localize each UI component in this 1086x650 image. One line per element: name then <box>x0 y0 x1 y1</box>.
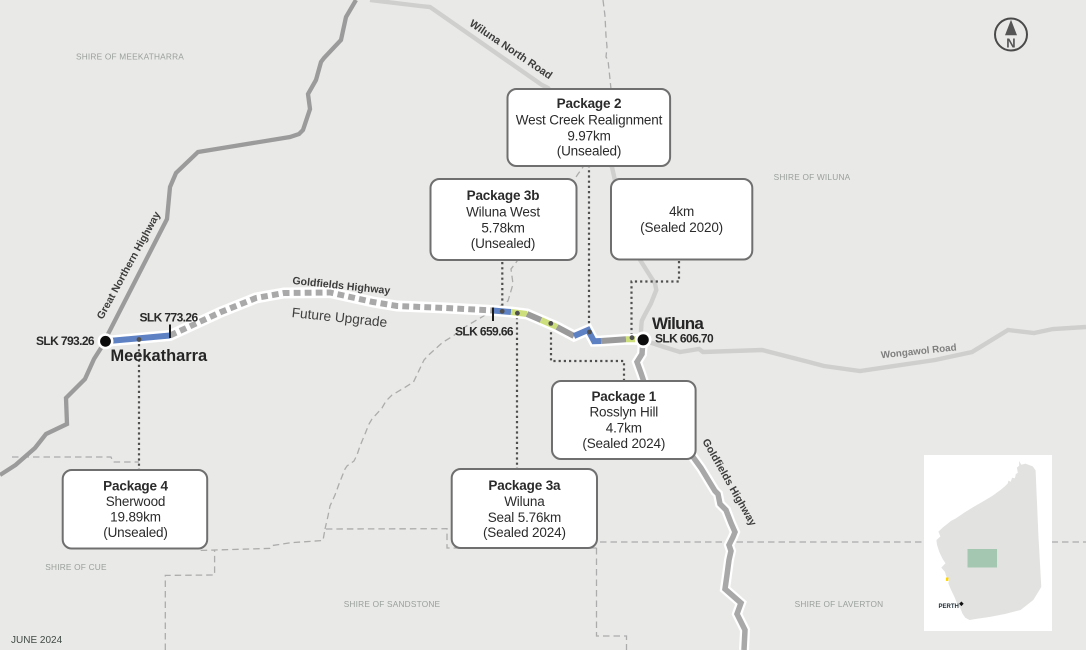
svg-text:SLK 659.66: SLK 659.66 <box>455 325 514 339</box>
svg-text:4.7km: 4.7km <box>606 420 642 435</box>
svg-text:SLK 606.70: SLK 606.70 <box>655 332 714 346</box>
svg-text:(Sealed 2020): (Sealed 2020) <box>640 220 723 235</box>
svg-text:N: N <box>1006 36 1015 51</box>
svg-text:SLK 793.26: SLK 793.26 <box>36 334 95 348</box>
svg-text:JUNE 2024: JUNE 2024 <box>11 635 63 646</box>
svg-text:SHIRE OF SANDSTONE: SHIRE OF SANDSTONE <box>344 599 441 609</box>
svg-text:Rosslyn Hill: Rosslyn Hill <box>589 405 658 420</box>
svg-text:Meekatharra: Meekatharra <box>111 347 208 365</box>
svg-text:5.78km: 5.78km <box>481 221 524 236</box>
svg-text:(Sealed 2024): (Sealed 2024) <box>483 525 566 540</box>
svg-text:Seal 5.76km: Seal 5.76km <box>488 510 561 525</box>
svg-text:PERTH: PERTH <box>939 604 959 610</box>
svg-text:(Unsealed): (Unsealed) <box>103 525 168 540</box>
svg-text:SHIRE OF MEEKATHARRA: SHIRE OF MEEKATHARRA <box>76 52 184 62</box>
svg-text:Package 3b: Package 3b <box>467 188 540 203</box>
svg-text:Sherwood: Sherwood <box>106 494 166 509</box>
svg-text:SHIRE OF WILUNA: SHIRE OF WILUNA <box>774 172 851 182</box>
svg-text:(Sealed 2024): (Sealed 2024) <box>582 436 665 451</box>
svg-text:Package 2: Package 2 <box>557 96 622 111</box>
svg-text:Package 4: Package 4 <box>103 479 168 494</box>
svg-text:19.89km: 19.89km <box>110 510 161 525</box>
svg-text:Wiluna: Wiluna <box>504 494 545 509</box>
svg-text:SHIRE OF CUE: SHIRE OF CUE <box>45 562 107 572</box>
svg-text:Wiluna West: Wiluna West <box>466 205 540 220</box>
svg-text:Wiluna: Wiluna <box>652 314 704 333</box>
svg-text:SHIRE OF LAVERTON: SHIRE OF LAVERTON <box>795 599 884 609</box>
svg-text:West Creek Realignment: West Creek Realignment <box>516 113 663 128</box>
svg-text:(Unsealed): (Unsealed) <box>471 236 536 251</box>
svg-text:4km: 4km <box>669 204 694 219</box>
svg-text:Package 3a: Package 3a <box>488 478 561 493</box>
svg-text:SLK 773.26: SLK 773.26 <box>140 311 199 325</box>
svg-text:Package 1: Package 1 <box>591 389 656 404</box>
svg-text:9.97km: 9.97km <box>567 129 610 144</box>
svg-text:(Unsealed): (Unsealed) <box>557 144 622 159</box>
